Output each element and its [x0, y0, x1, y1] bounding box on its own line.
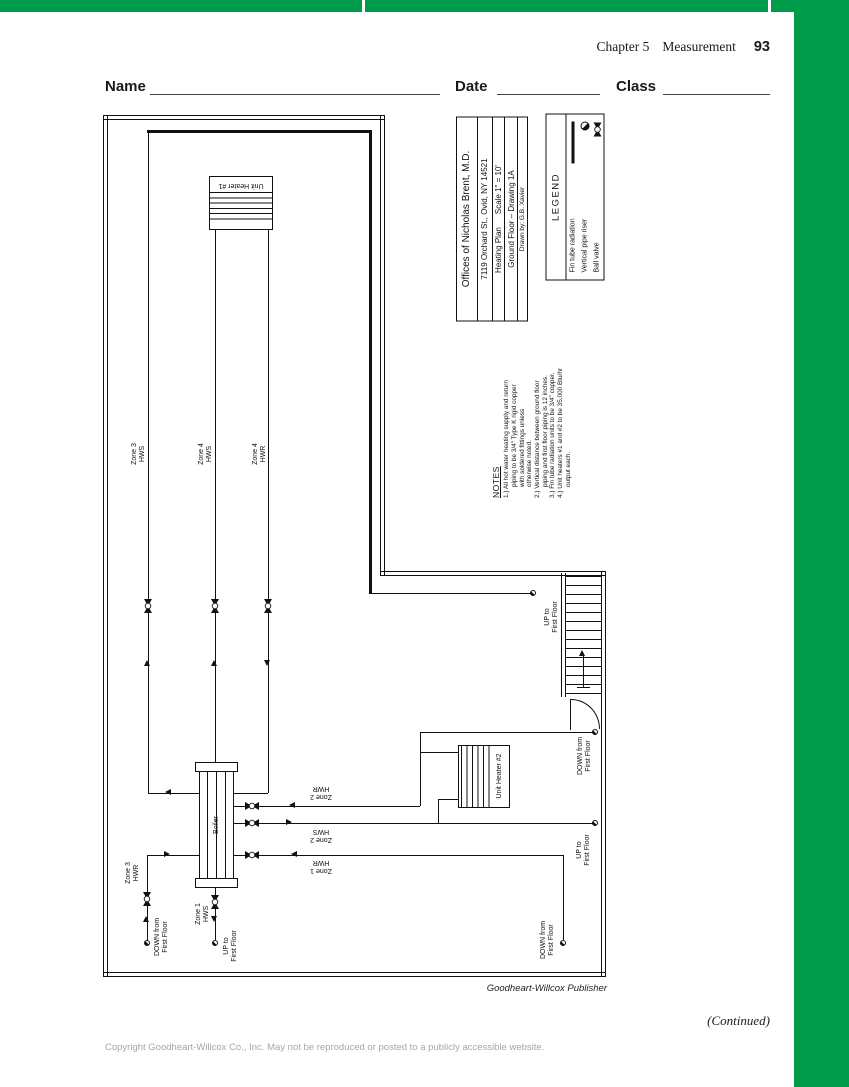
class-blank-line: [663, 93, 770, 95]
legend: LEGEND Fin tube radiation Vertical pipe …: [545, 113, 604, 280]
flow-arrow-icon: [165, 789, 171, 795]
pipe-zone1-hwr: [563, 855, 564, 940]
ball-valve-icon: [143, 598, 153, 614]
zone4-hws-label: Zone 4 HWS: [198, 443, 214, 465]
copyright-line: Copyright Goodheart-Willcox Co., Inc. Ma…: [105, 1042, 544, 1053]
door-swing-arc: [571, 699, 600, 729]
flow-arrow-icon: [164, 851, 170, 857]
flow-arrow-icon: [211, 916, 217, 922]
legend-item-label: Vertical pipe riser: [581, 218, 588, 272]
flow-arrow-icon: [289, 802, 295, 808]
pipe-riser-icon: [592, 820, 598, 826]
note-line: otherwise noted.: [526, 328, 534, 498]
pipe-zone3-hwr: [147, 855, 199, 856]
riser-down-label: DOWN from First Floor: [577, 737, 593, 775]
wall-segment: [103, 972, 606, 977]
notes-title: NOTES: [491, 328, 501, 498]
class-label: Class: [616, 78, 656, 95]
plan-scale: Scale 1" = 10': [494, 165, 503, 214]
boiler-section-line: [207, 772, 208, 878]
note-line: piping and first floor piping is 12 inch…: [542, 328, 550, 498]
ball-valve-icon: [210, 598, 220, 614]
note-line: output each.: [565, 328, 573, 498]
name-blank-line: [150, 93, 440, 95]
zone2-hws-label: Zone 2 HWS: [310, 827, 332, 843]
boiler-label: Boiler: [213, 816, 221, 834]
chapter-title: Measurement: [662, 39, 735, 55]
name-label: Name: [105, 78, 146, 95]
zone3-hws-label: Zone 3 HWS: [131, 443, 147, 465]
ball-valve-icon: [263, 598, 273, 614]
unit-heater-1-fins: [210, 192, 272, 220]
chapter-label: Chapter 5: [597, 39, 650, 55]
note-line: piping to be 3/4" Type K rigid copper: [511, 328, 519, 498]
pipe-unit-heater2-supply: [438, 799, 439, 823]
pipe-zone3-hws: [148, 793, 200, 794]
unit-heater-2-fins: [461, 746, 491, 807]
continued-note: (Continued): [707, 1013, 770, 1029]
pipe-zone1-hwr: [234, 855, 563, 856]
title-block-client: Offices of Nicholas Brent, M.D.: [457, 117, 478, 320]
zone3-hwr-label: Zone 3 HWR: [125, 862, 141, 884]
boiler-bottom-header: [195, 878, 238, 888]
riser-down-label: DOWN from First Floor: [154, 918, 170, 956]
zone4-hwr-label: Zone 4 HWR: [252, 443, 268, 465]
pipe-riser-icon: [580, 121, 589, 130]
note-line: with soldered fittings unless: [519, 328, 527, 498]
stair-arrow-head-icon: [579, 650, 585, 656]
pipe-zone2-hwr: [420, 732, 593, 733]
legend-item: Ball valve: [591, 114, 603, 279]
pipe-riser-icon: [212, 940, 218, 946]
legend-item-label: Fin tube radiation: [569, 218, 576, 272]
ball-valve-icon: [244, 850, 260, 860]
pipe-zone4-hwr: [233, 793, 268, 794]
worksheet-page: Chapter 5 Measurement 93 Name Date Class: [0, 0, 849, 1087]
zone2-hwr-label: Zone 2 HWR: [310, 784, 332, 800]
flow-arrow-icon: [264, 660, 270, 666]
pipe-zone4-hws: [215, 230, 216, 762]
ball-valve-icon: [592, 121, 602, 137]
title-block-drawn-by: Drawn by: G.B. Xavier: [518, 117, 527, 320]
right-green-band: [794, 0, 849, 1087]
flow-arrow-icon: [291, 851, 297, 857]
pipe-riser-icon: [530, 590, 536, 596]
riser-up-label: UP to First Floor: [576, 834, 592, 866]
pipe-unit-heater2-return: [420, 752, 458, 753]
legend-item: Vertical pipe riser: [578, 114, 590, 279]
boiler-section-line: [225, 772, 226, 878]
flow-arrow-icon: [286, 819, 292, 825]
title-block-plan-scale: Heating Plan Scale 1" = 10': [493, 117, 506, 320]
zone1-hwr-label: Zone 1 HWR: [310, 858, 332, 874]
page-edge-mark: [768, 0, 771, 22]
page-number: 93: [754, 39, 770, 55]
riser-up-label: UP to First Floor: [544, 601, 560, 633]
pipe-zone2-hwr: [234, 806, 420, 807]
publisher-credit: Goodheart-Willcox Publisher: [487, 983, 607, 994]
pipe-zone2-hwr: [420, 732, 421, 806]
note-line: 4.) Unit heaters #1 and #2 to be 35,000 …: [557, 328, 565, 498]
zone1-hws-label: Zone 1 HWS: [195, 903, 211, 925]
riser-up-label: UP to First Floor: [223, 930, 239, 962]
legend-item: Fin tube radiation: [566, 114, 578, 279]
pipe-to-riser: [371, 593, 531, 594]
title-block: Offices of Nicholas Brent, M.D. 7119 Orc…: [456, 116, 528, 321]
unit-heater-2-label: Unit Heater #2: [496, 753, 504, 798]
pipe-riser-icon: [592, 729, 598, 735]
note-line: 3.) Fin tube radiation units to be 3/4" …: [549, 328, 557, 498]
fin-tube-radiation-run: [369, 130, 372, 594]
plan-name: Heating Plan: [494, 227, 503, 273]
date-blank-line: [497, 93, 600, 95]
title-block-sheet: Ground Floor – Drawing 1A: [505, 117, 518, 320]
riser-down-label: DOWN from First Floor: [540, 921, 556, 959]
pipe-unit-heater2-supply: [438, 799, 458, 800]
page-edge-mark: [362, 0, 365, 12]
fin-tube-radiation-icon: [571, 121, 574, 163]
fin-tube-radiation-run: [147, 130, 371, 133]
note-line: 1.) All hot water heating supply and ret…: [503, 328, 511, 498]
title-block-address: 7119 Orchard St., Ovid, NY 14521: [478, 117, 493, 320]
wall-segment: [380, 115, 385, 575]
unit-heater-1-label: Unit Heater #1: [218, 181, 263, 189]
pipe-riser-icon: [144, 940, 150, 946]
legend-item-label: Ball valve: [593, 242, 600, 272]
wall-segment: [601, 571, 606, 977]
ball-valve-icon: [244, 818, 260, 828]
flow-arrow-icon: [144, 660, 150, 666]
top-green-band: [0, 0, 849, 12]
ball-valve-icon: [244, 801, 260, 811]
ball-valve-icon: [142, 891, 152, 907]
flow-arrow-icon: [211, 660, 217, 666]
legend-title: LEGEND: [546, 114, 566, 279]
notes-block: NOTES 1.) All hot water heating supply a…: [491, 328, 567, 498]
stair-arrow-tail: [577, 687, 590, 688]
pipe-zone3-hws: [148, 131, 149, 793]
ball-valve-icon: [210, 894, 220, 910]
pipe-riser-icon: [560, 940, 566, 946]
wall-segment: [103, 115, 108, 977]
flow-arrow-icon: [143, 916, 149, 922]
stair-direction-arrow: [583, 656, 584, 687]
note-line: 2.) Vertical distance between ground flo…: [534, 328, 542, 498]
date-label: Date: [455, 78, 488, 95]
running-head: Chapter 5 Measurement 93: [597, 39, 771, 55]
pipe-zone4-hwr: [268, 230, 269, 793]
wall-segment: [103, 115, 385, 120]
